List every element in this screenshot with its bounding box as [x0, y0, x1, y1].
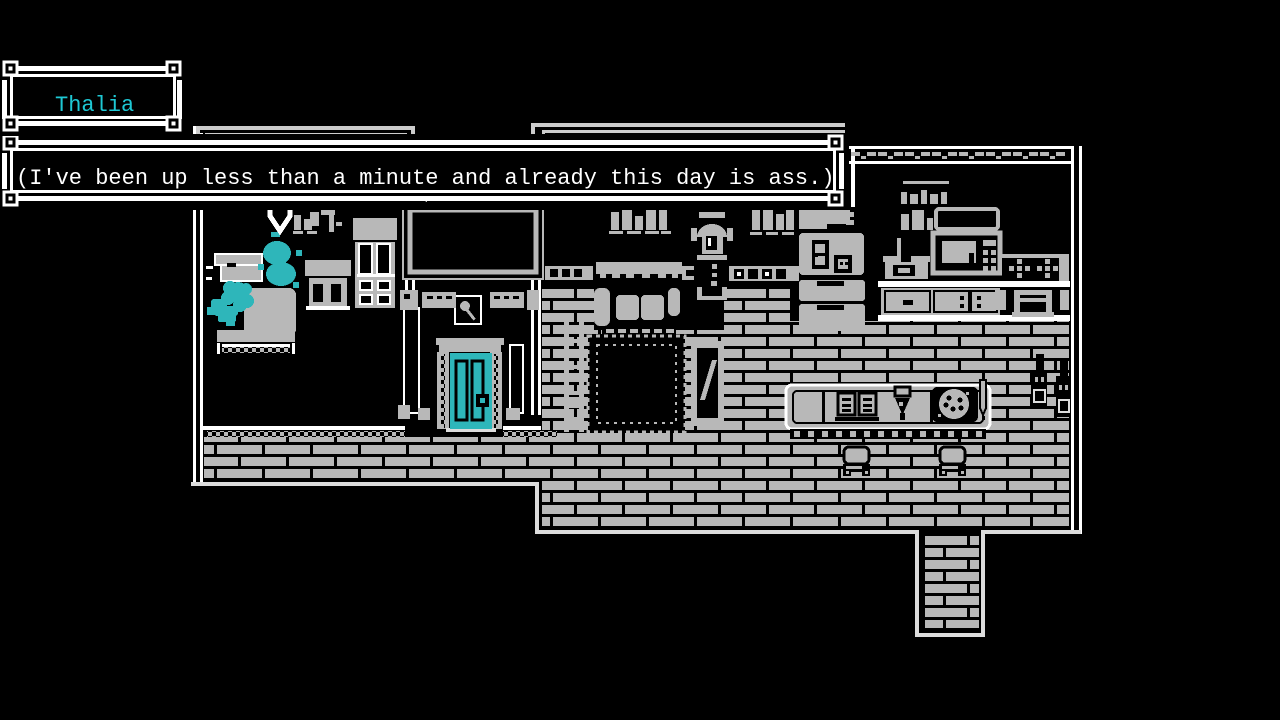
svg-text:(I've been up less than a minu: (I've been up less than a minute and alr…: [16, 166, 835, 191]
svg-text:Thalia: Thalia: [55, 93, 134, 118]
